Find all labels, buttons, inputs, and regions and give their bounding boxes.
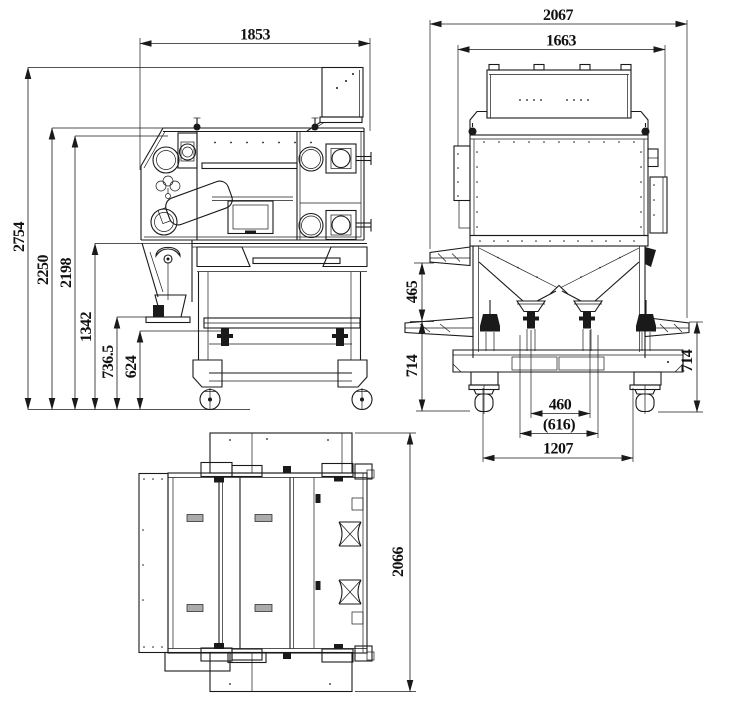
side-view: [28, 68, 372, 410]
ejector-motor-bottom: [299, 211, 371, 240]
hopper-slants: [479, 248, 639, 301]
dim-label-1663: 1663: [546, 33, 577, 50]
top-view: [139, 433, 374, 692]
dim-label-736-5: 736.5: [100, 345, 117, 379]
engineering-drawing: 1853 2067 1663 2754 2250 2198: [0, 0, 729, 705]
top-caster-lower: [339, 580, 361, 604]
dim-label-460: 460: [549, 397, 572, 414]
machine-stand: [192, 244, 372, 410]
top-caster-upper: [339, 522, 361, 546]
side-chute-upper-left: [430, 247, 470, 266]
dim-front-714-right: 714: [658, 322, 703, 412]
dimensions: 1853 2067 1663 2754 2250 2198: [11, 7, 703, 692]
valve-icon: [156, 176, 180, 199]
caster-wheel-right: [352, 388, 372, 410]
caster-wheel-left: [200, 388, 220, 410]
dim-front-460: 460: [531, 330, 590, 418]
side-chute-lower-left: [405, 318, 473, 337]
dim-front-body-width: 1663: [458, 33, 665, 178]
dim-label-2198: 2198: [58, 258, 75, 289]
dim-label-465: 465: [404, 280, 421, 303]
front-caster-left: [469, 385, 499, 414]
dim-label-2754: 2754: [11, 222, 28, 253]
dim-label-714-right: 714: [679, 349, 696, 372]
dim-label-2067: 2067: [543, 7, 574, 24]
dim-label-624: 624: [123, 355, 140, 378]
dim-height-1342: 1342: [78, 244, 240, 410]
discharge-chute: [142, 240, 192, 323]
dim-label-1853: 1853: [240, 27, 271, 44]
dim-label-616: (616): [543, 417, 575, 434]
drawing-svg: 1853 2067 1663 2754 2250 2198: [0, 0, 729, 705]
dim-label-1207: 1207: [543, 441, 574, 458]
dim-height-2754: 2754: [11, 68, 28, 410]
dim-label-2066: 2066: [390, 547, 407, 578]
control-screen: [228, 201, 273, 234]
dim-front-465: 465: [404, 263, 434, 321]
base-frame: [453, 350, 683, 385]
dim-label-2250: 2250: [35, 255, 52, 286]
front-view: [405, 65, 689, 415]
front-caster-right: [630, 385, 660, 414]
dim-height-624: 624: [123, 331, 222, 410]
dim-label-714-left: 714: [404, 354, 421, 377]
ejector-motor-top: [299, 144, 371, 173]
dim-label-1342: 1342: [78, 312, 95, 343]
